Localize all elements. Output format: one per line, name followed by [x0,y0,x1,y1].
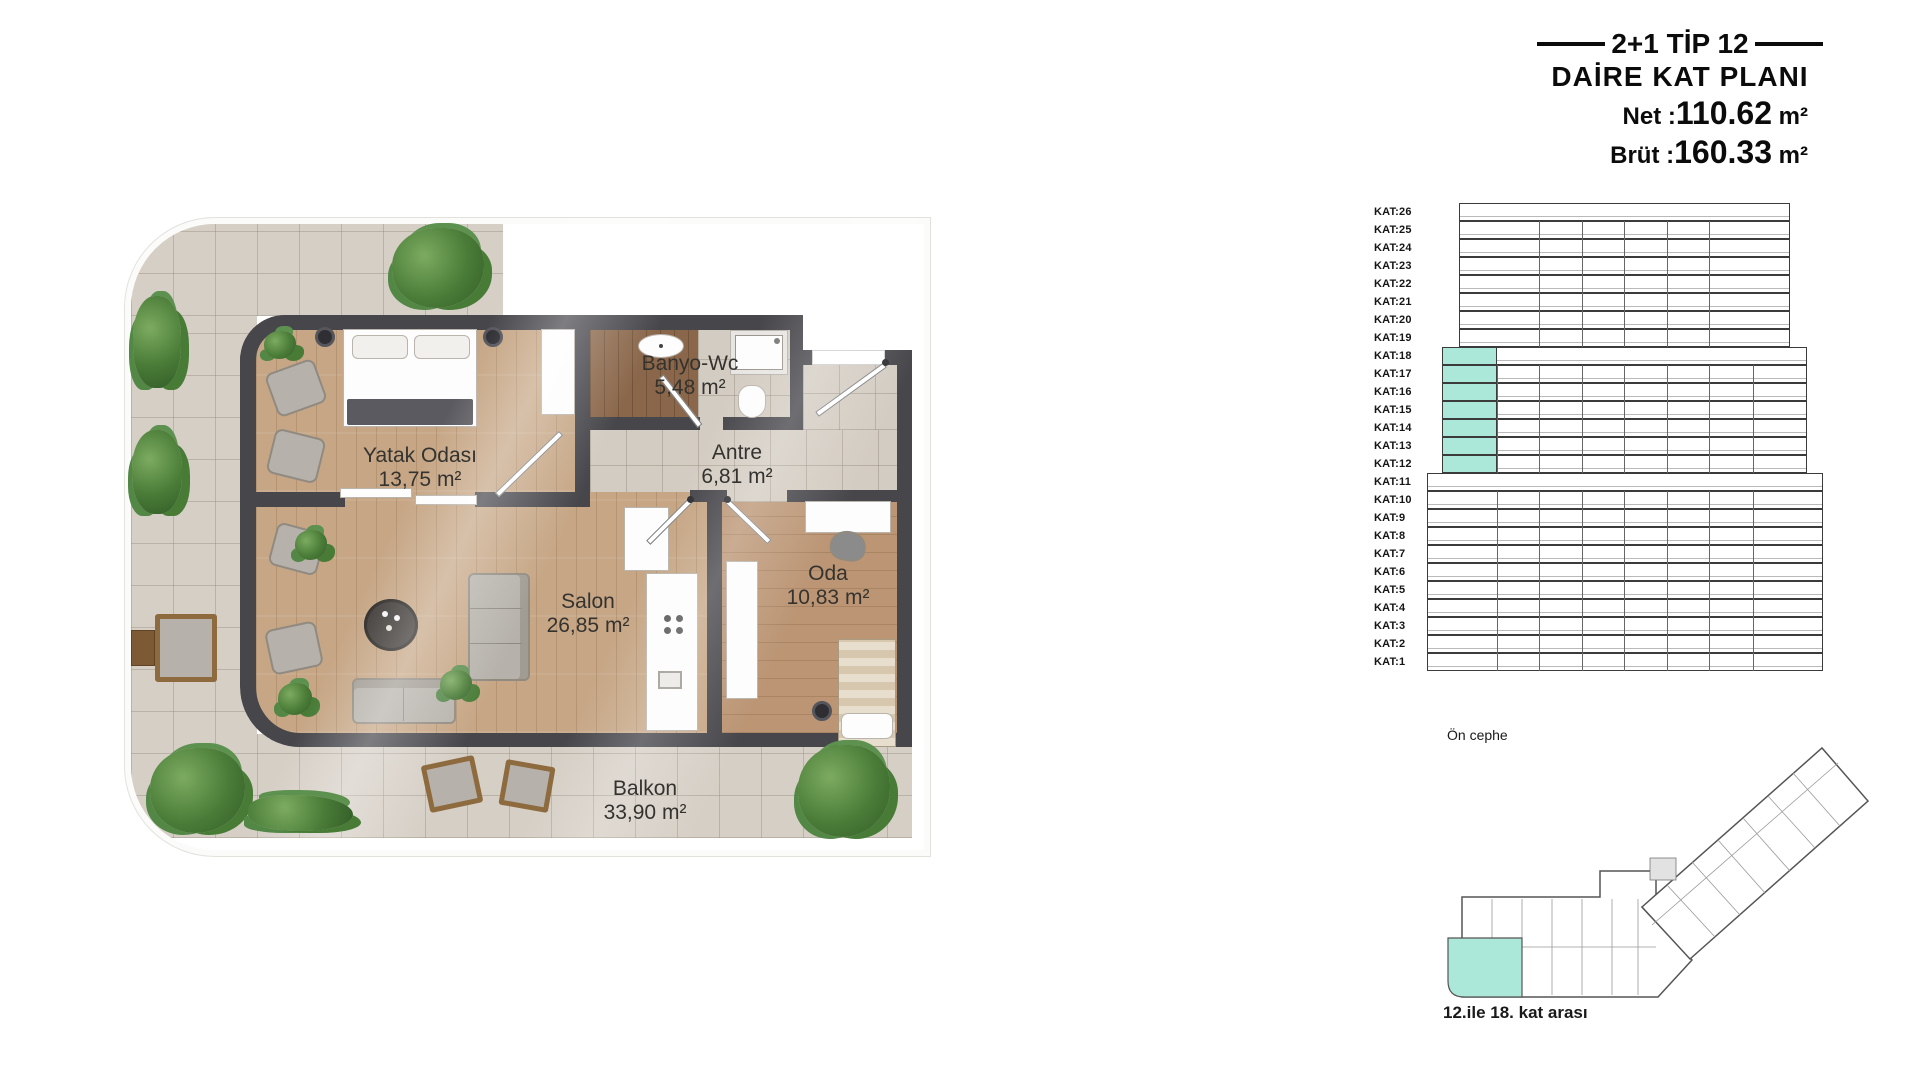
room-area: 6,81 m² [701,465,772,489]
floor-plan-sheet: Yatak Odası 13,75 m² Banyo-Wc 5,48 m² An… [0,0,1920,1080]
floor-row [1427,563,1823,581]
column-divider [1709,221,1710,347]
column-divider [1624,221,1625,347]
room-area: 26,85 m² [547,614,630,638]
floor-row [1427,509,1823,527]
floor-row [1427,491,1823,509]
floor-label: KAT:19 [1374,332,1412,344]
building-wing-diagonal [1642,748,1868,959]
slab-line [1428,648,1822,649]
floor-label: KAT:18 [1374,350,1412,362]
column-divider [1582,491,1583,671]
brut-value: 160.33 [1674,134,1772,170]
column-divider [1582,221,1583,347]
slab-line [1428,540,1822,541]
slab-line [1428,504,1822,505]
column-divider [1624,491,1625,671]
floor-row [1459,203,1790,221]
column-divider [1624,365,1625,473]
brut-label: Brüt : [1610,142,1674,169]
floor-label: KAT:1 [1374,656,1405,668]
slab-line [1428,576,1822,577]
floor-label: KAT:20 [1374,314,1412,326]
floor-label: KAT:3 [1374,620,1405,632]
highlighted-floor-cell [1442,455,1497,473]
title-dash-left [1537,42,1605,46]
floor-label: KAT:8 [1374,530,1405,542]
highlighted-unit [1448,938,1522,997]
title-block: 2+1 TİP 12 DAİRE KAT PLANI Net :110.62 m… [1490,28,1870,171]
plan-type-line: 2+1 TİP 12 [1490,28,1870,60]
floor-label: KAT:23 [1374,260,1412,272]
column-divider [1667,221,1668,347]
net-value: 110.62 [1676,95,1772,131]
column-divider [1497,491,1498,671]
room-name: Yatak Odası [363,444,477,468]
column-divider [1753,491,1754,671]
floor-label: KAT:25 [1374,224,1412,236]
column-divider [1667,365,1668,473]
floor-label: KAT:14 [1374,422,1412,434]
floor-label: KAT:6 [1374,566,1405,578]
room-area: 33,90 m² [604,801,687,825]
floor-label: KAT:21 [1374,296,1412,308]
floor-label: KAT:9 [1374,512,1405,524]
highlighted-floor-cell [1442,437,1497,455]
slab-line [1428,594,1822,595]
floor-label: KAT:17 [1374,368,1412,380]
slab-line [1428,486,1822,487]
floor-label: KAT:2 [1374,638,1405,650]
floor-row [1427,653,1823,671]
room-label-antre: Antre 6,81 m² [701,441,772,489]
room-label-yatak-odasi: Yatak Odası 13,75 m² [363,444,477,492]
highlighted-floor-cell [1442,365,1497,383]
highlighted-floor-cell [1442,347,1497,365]
floor-row [1427,545,1823,563]
brut-unit: m² [1779,142,1808,169]
floor-label: KAT:26 [1374,206,1412,218]
stair-core [1650,858,1676,880]
column-divider [1539,221,1540,347]
floor-label: KAT:12 [1374,458,1412,470]
slab-line [1428,558,1822,559]
net-unit: m² [1779,103,1808,130]
building-elevation: KAT:26KAT:25KAT:24KAT:23KAT:22KAT:21KAT:… [1372,196,1842,756]
floor-row [1427,581,1823,599]
column-divider [1582,365,1583,473]
room-area: 5,48 m² [642,376,739,400]
highlighted-floor-cell [1442,401,1497,419]
highlighted-floor-cell [1442,419,1497,437]
room-name: Banyo-Wc [642,352,739,376]
net-area-line: Net :110.62 m² [1490,95,1870,132]
floor-label: KAT:24 [1374,242,1412,254]
floor-label: KAT:11 [1374,476,1411,488]
column-divider [1539,365,1540,473]
slab-line [1428,612,1822,613]
floor-label: KAT:15 [1374,404,1412,416]
floor-row [1427,473,1823,491]
room-area: 13,75 m² [363,468,477,492]
column-divider [1753,365,1754,473]
site-key-plan [1440,740,1900,1015]
room-name: Oda [787,562,870,586]
column-divider [1539,491,1540,671]
floor-label: KAT:5 [1374,584,1405,596]
floor-label: KAT:16 [1374,386,1412,398]
plan-title: DAİRE KAT PLANI [1490,61,1870,93]
slab-line [1460,216,1789,217]
room-name: Balkon [604,777,687,801]
slab-line [1443,360,1806,361]
floor-row [1427,527,1823,545]
room-name: Salon [547,590,630,614]
room-label-oda: Oda 10,83 m² [787,562,870,610]
room-label-salon: Salon 26,85 m² [547,590,630,638]
site-plan-caption: 12.ile 18. kat arası [1443,1003,1588,1023]
floor-label: KAT:10 [1374,494,1412,506]
floor-row [1427,599,1823,617]
net-label: Net : [1623,103,1676,130]
room-label-balkon: Balkon 33,90 m² [604,777,687,825]
room-area: 10,83 m² [787,586,870,610]
column-divider [1709,365,1710,473]
room-name: Antre [701,441,772,465]
floor-label: KAT:22 [1374,278,1412,290]
floor-label: KAT:7 [1374,548,1405,560]
plan-type: 2+1 TİP 12 [1611,28,1748,60]
column-divider [1667,491,1668,671]
room-label-banyo: Banyo-Wc 5,48 m² [642,352,739,400]
title-dash-right [1755,42,1823,46]
brut-area-line: Brüt :160.33 m² [1490,134,1870,171]
floor-row [1427,617,1823,635]
column-divider [1709,491,1710,671]
column-divider [1497,365,1498,473]
slab-line [1428,522,1822,523]
slab-line [1428,630,1822,631]
slab-line [1428,666,1822,667]
floor-row [1427,635,1823,653]
floor-label: KAT:4 [1374,602,1405,614]
highlighted-floor-cell [1442,383,1497,401]
floor-label: KAT:13 [1374,440,1412,452]
